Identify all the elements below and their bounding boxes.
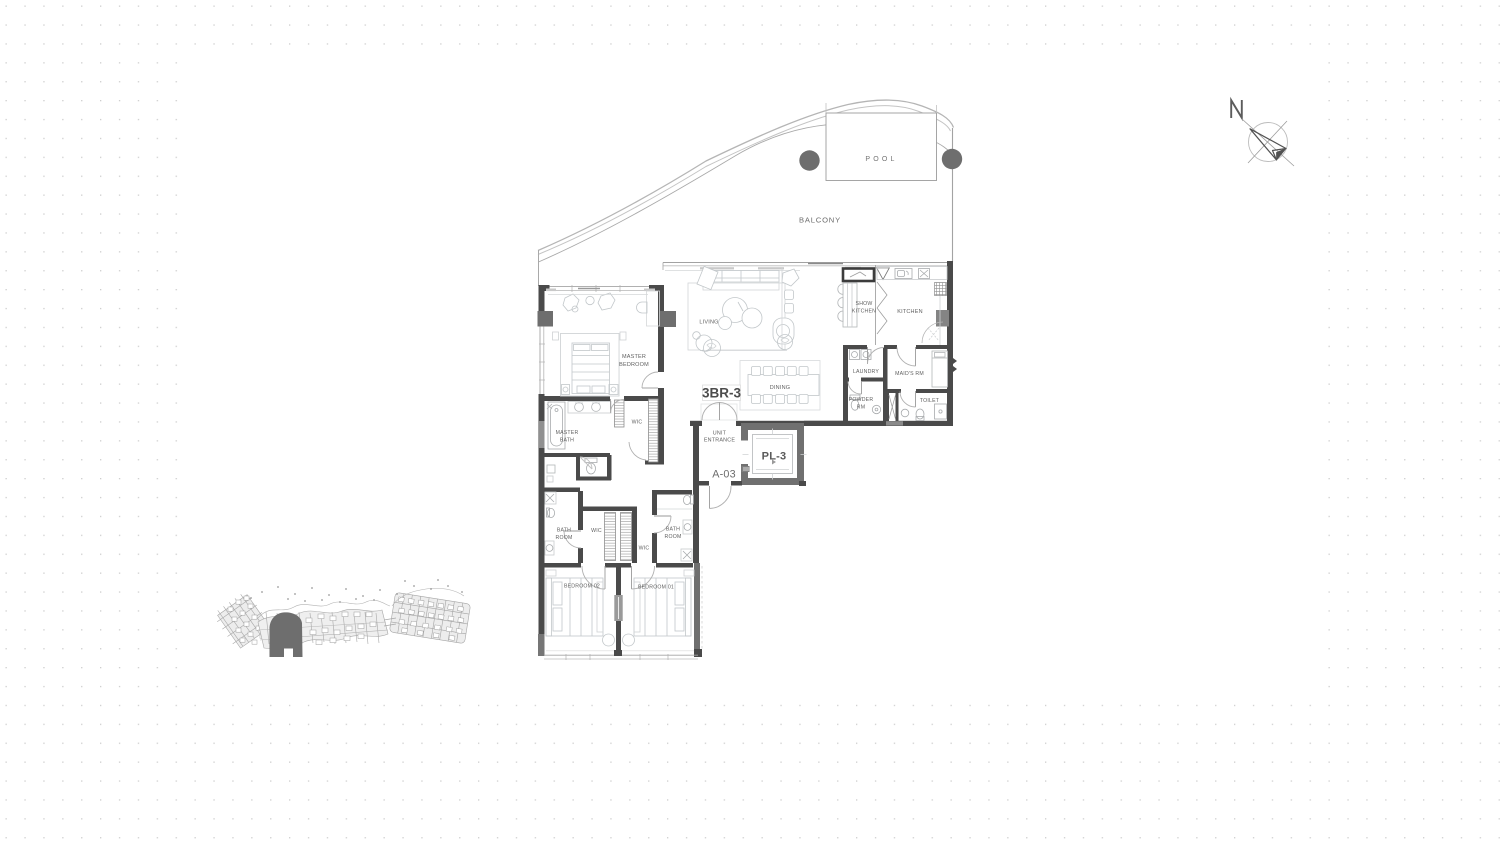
svg-text:MASTER: MASTER	[622, 354, 646, 360]
svg-text:RM: RM	[857, 405, 865, 411]
svg-text:LIVING: LIVING	[699, 320, 718, 326]
svg-text:3BR-3: 3BR-3	[702, 386, 742, 401]
svg-text:ROOM: ROOM	[556, 535, 573, 541]
svg-text:SHOW: SHOW	[856, 301, 873, 307]
svg-text:BEDROOM 01: BEDROOM 01	[638, 585, 674, 591]
svg-text:BEDROOM: BEDROOM	[619, 362, 649, 368]
svg-text:MAID'S RM: MAID'S RM	[895, 371, 924, 377]
svg-text:BEDROOM 02: BEDROOM 02	[564, 584, 600, 590]
svg-text:WIC: WIC	[639, 546, 650, 552]
svg-text:TOILET: TOILET	[920, 398, 940, 404]
svg-text:WIC: WIC	[632, 420, 643, 426]
svg-text:KITCHEN: KITCHEN	[852, 309, 876, 315]
svg-text:PL-3: PL-3	[762, 451, 787, 463]
svg-text:KITCHEN: KITCHEN	[897, 309, 923, 315]
svg-text:ROOM: ROOM	[665, 534, 682, 540]
svg-text:A-03: A-03	[712, 469, 736, 481]
svg-text:ENTRANCE: ENTRANCE	[704, 438, 735, 444]
svg-text:BATH: BATH	[557, 528, 571, 534]
svg-text:MASTER: MASTER	[556, 430, 579, 436]
svg-text:BALCONY: BALCONY	[799, 216, 841, 225]
svg-text:DINING: DINING	[770, 385, 790, 391]
svg-text:LAUNDRY: LAUNDRY	[853, 369, 879, 375]
svg-text:WIC: WIC	[591, 528, 602, 534]
svg-text:POWDER: POWDER	[849, 397, 874, 403]
svg-text:UNIT: UNIT	[713, 431, 727, 437]
svg-text:BATH: BATH	[666, 527, 680, 533]
svg-text:BATH: BATH	[560, 438, 574, 444]
svg-text:POOL: POOL	[865, 156, 897, 163]
